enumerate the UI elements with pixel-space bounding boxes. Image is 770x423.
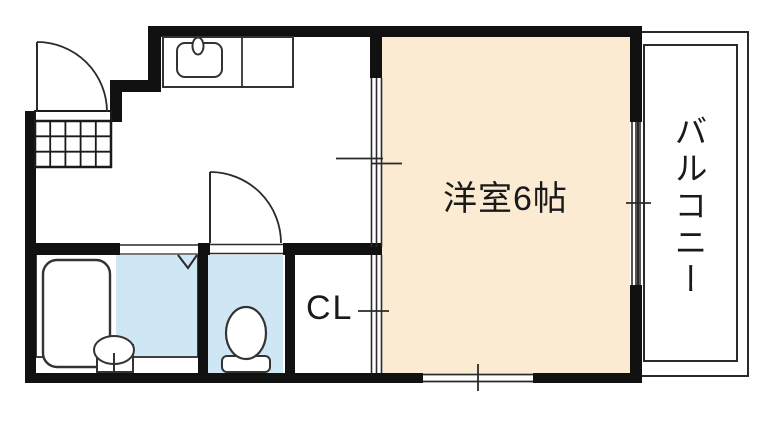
door-swing-arc (37, 42, 107, 112)
wall-right-lower (630, 285, 642, 383)
wall-room-stub-top (370, 26, 382, 78)
grid-frame (35, 121, 111, 167)
toilet-bowl (226, 307, 266, 359)
wall-bottom-left (25, 373, 423, 383)
entry-step-grid (35, 111, 111, 167)
wall-bottom-right (533, 373, 642, 383)
floorplan-drawing (0, 0, 770, 423)
wall-mid-b (198, 243, 210, 255)
wall-top (148, 26, 642, 37)
entrance-door-icon (37, 42, 107, 112)
wall-mid-c (283, 243, 382, 255)
wall-mid-a (25, 243, 120, 255)
closet-label: CL (306, 291, 353, 325)
wall-right-upper (630, 26, 642, 122)
toilet-icon (222, 307, 270, 372)
wall-bath-toilet (198, 255, 208, 373)
faucet (193, 38, 204, 55)
floorplan-canvas: 洋室6帖 CL バルコニー (0, 0, 770, 423)
kitchen-sink-icon (163, 37, 293, 87)
wall-toilet-closet (285, 255, 295, 373)
toilet-door-opening (210, 243, 283, 255)
western-room-label: 洋室6帖 (443, 182, 568, 216)
door-swing-arc (210, 172, 281, 243)
balcony-label: バルコニー (672, 114, 705, 314)
wall-room-stub-mid (370, 247, 382, 255)
entry-threshold (35, 111, 111, 121)
toilet-door-icon (210, 172, 281, 243)
washbasin-icon (94, 336, 134, 372)
